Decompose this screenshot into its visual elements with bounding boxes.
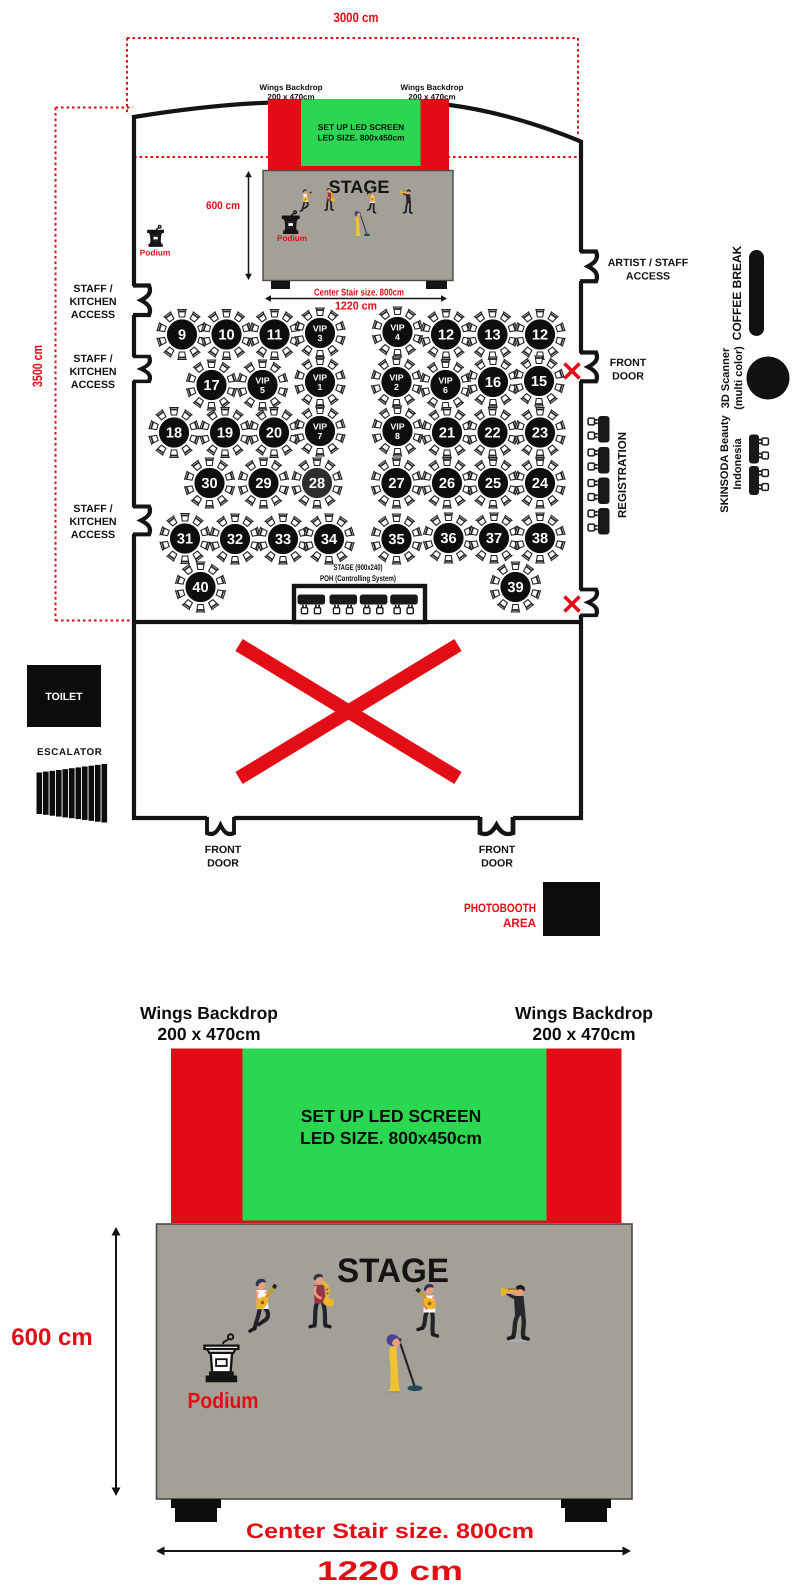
svg-text:37: 37 bbox=[486, 531, 502, 547]
svg-text:28: 28 bbox=[309, 476, 325, 492]
svg-text:Center Stair size. 800cm: Center Stair size. 800cm bbox=[314, 288, 404, 299]
svg-text:1: 1 bbox=[318, 382, 323, 392]
svg-text:15: 15 bbox=[531, 374, 547, 390]
svg-text:10: 10 bbox=[218, 328, 234, 344]
svg-text:STAFF /KITCHENACCESS: STAFF /KITCHENACCESS bbox=[69, 353, 116, 391]
svg-text:36: 36 bbox=[440, 531, 456, 547]
svg-text:Wings Backdrop200 x 470cm: Wings Backdrop200 x 470cm bbox=[515, 1003, 653, 1044]
svg-text:Wings Backdrop200 x 470cm: Wings Backdrop200 x 470cm bbox=[400, 83, 463, 102]
svg-text:VIP: VIP bbox=[438, 376, 452, 386]
svg-text:FRONTDOOR: FRONTDOOR bbox=[205, 844, 242, 870]
svg-text:40: 40 bbox=[192, 580, 208, 596]
svg-text:AREA: AREA bbox=[503, 916, 536, 930]
svg-text:12: 12 bbox=[532, 328, 548, 344]
svg-text:22: 22 bbox=[484, 426, 500, 442]
svg-text:27: 27 bbox=[388, 476, 404, 492]
svg-text:17: 17 bbox=[203, 378, 219, 394]
svg-text:18: 18 bbox=[166, 426, 182, 442]
svg-text:6: 6 bbox=[443, 385, 448, 395]
svg-text:33: 33 bbox=[275, 532, 291, 548]
svg-text:21: 21 bbox=[439, 426, 455, 442]
svg-text:TOILET: TOILET bbox=[45, 691, 83, 703]
svg-text:31: 31 bbox=[177, 532, 193, 548]
svg-text:1220 cm: 1220 cm bbox=[335, 301, 377, 313]
svg-text:Wings Backdrop200 x 470cm: Wings Backdrop200 x 470cm bbox=[140, 1003, 278, 1044]
svg-text:3000 cm: 3000 cm bbox=[334, 10, 379, 25]
svg-text:Podium: Podium bbox=[140, 248, 171, 258]
svg-text:24: 24 bbox=[532, 476, 549, 492]
svg-text:STAFF /KITCHENACCESS: STAFF /KITCHENACCESS bbox=[69, 283, 116, 321]
svg-text:13: 13 bbox=[484, 328, 500, 344]
svg-text:7: 7 bbox=[318, 431, 323, 441]
svg-text:8: 8 bbox=[395, 431, 400, 441]
svg-text:Podium: Podium bbox=[188, 1388, 259, 1413]
svg-text:VIP: VIP bbox=[390, 422, 404, 432]
svg-text:FRONTDOOR: FRONTDOOR bbox=[610, 357, 647, 383]
svg-text:VIP: VIP bbox=[389, 373, 403, 383]
svg-text:ESCALATOR: ESCALATOR bbox=[37, 747, 102, 758]
svg-text:600 cm: 600 cm bbox=[11, 1324, 92, 1351]
svg-text:23: 23 bbox=[532, 426, 548, 442]
svg-text:32: 32 bbox=[227, 532, 243, 548]
svg-text:5: 5 bbox=[260, 385, 265, 395]
svg-text:3: 3 bbox=[318, 333, 323, 343]
svg-text:Podium: Podium bbox=[277, 234, 307, 243]
svg-text:1220 cm: 1220 cm bbox=[317, 1556, 463, 1586]
svg-text:VIP: VIP bbox=[313, 324, 327, 334]
svg-text:2: 2 bbox=[394, 382, 399, 392]
svg-text:38: 38 bbox=[532, 531, 548, 547]
svg-text:STAGE (900x240): STAGE (900x240) bbox=[334, 563, 383, 572]
svg-text:3500 cm: 3500 cm bbox=[30, 345, 45, 387]
svg-text:SKINSODA Beauty: SKINSODA Beauty bbox=[719, 414, 731, 512]
svg-text:COFFEE BREAK: COFFEE BREAK bbox=[730, 245, 744, 340]
svg-text:30: 30 bbox=[201, 476, 217, 492]
svg-text:FRONTDOOR: FRONTDOOR bbox=[479, 844, 516, 870]
svg-text:VIP: VIP bbox=[390, 323, 404, 333]
svg-text:VIP: VIP bbox=[313, 422, 327, 432]
svg-text:Indonesia: Indonesia bbox=[732, 437, 744, 489]
svg-text:39: 39 bbox=[507, 580, 523, 596]
svg-text:12: 12 bbox=[438, 328, 454, 344]
svg-text:25: 25 bbox=[485, 476, 501, 492]
svg-text:POH (Controlling System): POH (Controlling System) bbox=[320, 574, 396, 583]
svg-text:26: 26 bbox=[439, 476, 455, 492]
svg-text:19: 19 bbox=[217, 426, 233, 442]
svg-text:(multi color): (multi color) bbox=[733, 346, 745, 410]
svg-text:600 cm: 600 cm bbox=[206, 200, 240, 212]
svg-text:PHOTOBOOTH: PHOTOBOOTH bbox=[464, 901, 536, 915]
svg-text:9: 9 bbox=[178, 328, 186, 344]
svg-text:Wings Backdrop200 x 470cm: Wings Backdrop200 x 470cm bbox=[259, 83, 322, 102]
svg-text:ARTIST / STAFFACCESS: ARTIST / STAFFACCESS bbox=[608, 257, 689, 283]
svg-text:4: 4 bbox=[395, 332, 400, 342]
svg-text:SET UP LED SCREENLED SIZE. 800: SET UP LED SCREENLED SIZE. 800x450cm bbox=[317, 122, 404, 143]
svg-text:29: 29 bbox=[255, 476, 271, 492]
svg-text:34: 34 bbox=[321, 532, 338, 548]
svg-text:VIP: VIP bbox=[255, 376, 269, 386]
svg-text:16: 16 bbox=[485, 375, 501, 391]
svg-text:20: 20 bbox=[266, 426, 282, 442]
svg-text:11: 11 bbox=[267, 328, 282, 344]
svg-text:Center Stair size. 800cm: Center Stair size. 800cm bbox=[246, 1520, 534, 1543]
svg-text:STAGE: STAGE bbox=[337, 1252, 449, 1290]
svg-text:STAFF /KITCHENACCESS: STAFF /KITCHENACCESS bbox=[69, 503, 116, 541]
svg-text:VIP: VIP bbox=[313, 373, 327, 383]
svg-text:3D Scanner: 3D Scanner bbox=[720, 347, 732, 408]
svg-text:35: 35 bbox=[388, 532, 404, 548]
svg-text:REGISTRATION: REGISTRATION bbox=[617, 432, 629, 518]
svg-text:STAGE: STAGE bbox=[329, 177, 390, 197]
